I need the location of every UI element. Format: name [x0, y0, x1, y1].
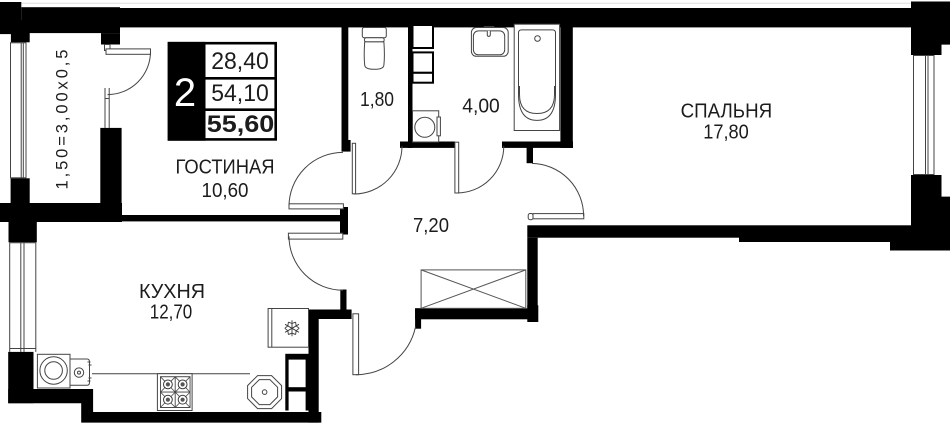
svg-text:7,20: 7,20 [413, 215, 449, 237]
svg-text:1,50=3,00x0,5: 1,50=3,00x0,5 [54, 50, 72, 190]
svg-text:17,80: 17,80 [703, 122, 749, 144]
svg-text:ГОСТИНАЯ: ГОСТИНАЯ [176, 157, 275, 179]
svg-text:10,60: 10,60 [202, 180, 249, 202]
svg-text:1,80: 1,80 [360, 89, 394, 111]
svg-text:12,70: 12,70 [150, 302, 193, 324]
svg-text:54,10: 54,10 [211, 80, 269, 107]
svg-text:2: 2 [174, 71, 196, 115]
svg-text:55,60: 55,60 [207, 111, 275, 138]
svg-text:СПАЛЬНЯ: СПАЛЬНЯ [681, 100, 773, 122]
svg-text:КУХНЯ: КУХНЯ [139, 281, 205, 303]
svg-text:28,40: 28,40 [211, 48, 269, 75]
svg-text:4,00: 4,00 [462, 96, 500, 118]
